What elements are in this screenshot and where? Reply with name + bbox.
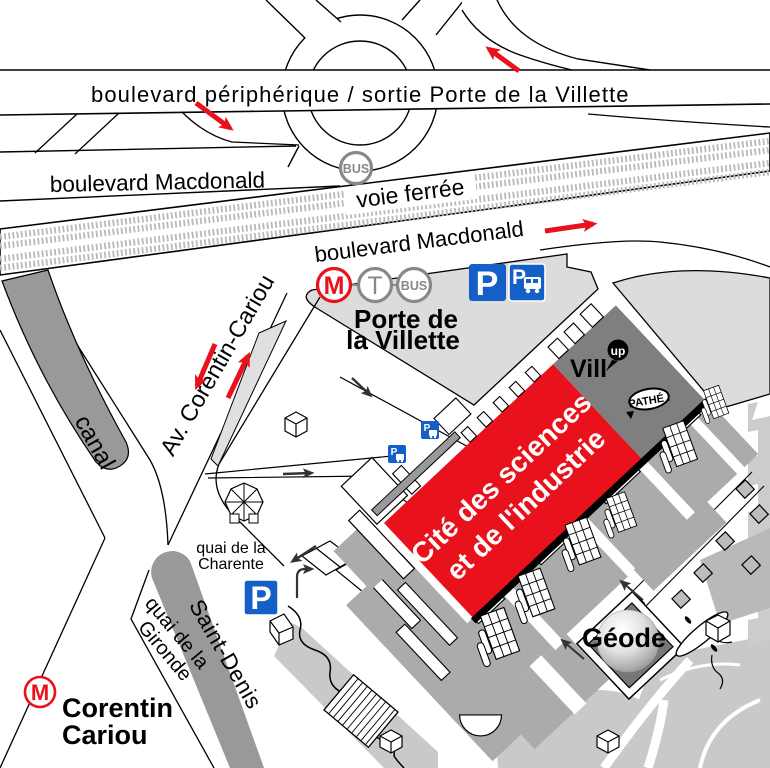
svg-text:Géode: Géode	[582, 623, 666, 653]
svg-text:Corentin: Corentin	[62, 693, 173, 723]
svg-text:up: up	[611, 344, 626, 358]
svg-text:Vill: Vill	[570, 355, 607, 383]
svg-text:P: P	[512, 266, 526, 289]
svg-text:M: M	[324, 272, 345, 300]
svg-text:Charente: Charente	[198, 556, 264, 573]
svg-text:boulevard périphérique / sorti: boulevard périphérique / sortie Porte de…	[91, 82, 630, 107]
svg-text:P: P	[250, 580, 271, 616]
svg-text:boulevard Macdonald: boulevard Macdonald	[50, 167, 266, 197]
svg-text:quai de la: quai de la	[196, 540, 265, 557]
svg-text:BUS: BUS	[401, 279, 427, 293]
svg-text:la Villette: la Villette	[346, 325, 460, 355]
svg-text:BUS: BUS	[343, 162, 369, 176]
svg-text:Cariou: Cariou	[62, 720, 148, 750]
svg-text:M: M	[31, 680, 49, 705]
svg-text:P: P	[476, 265, 499, 303]
svg-text:T: T	[367, 272, 382, 300]
